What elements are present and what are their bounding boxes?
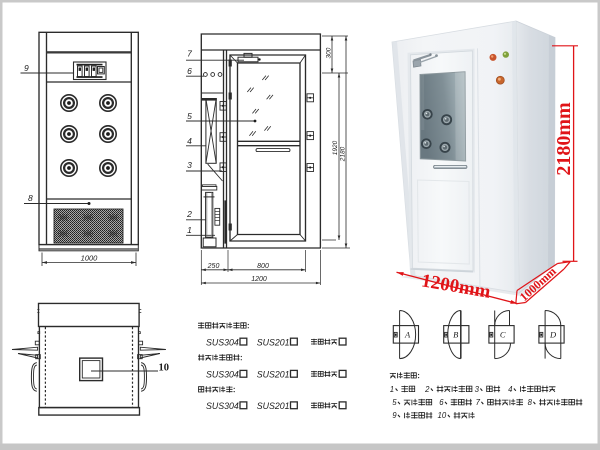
svg-text:10: 10 [438,411,447,420]
svg-text:2180mm: 2180mm [553,102,575,176]
svg-text:7: 7 [187,49,192,59]
svg-text:8: 8 [528,398,533,407]
svg-text:3: 3 [475,385,480,394]
svg-text:3: 3 [187,160,192,170]
svg-text:7: 7 [476,398,481,407]
svg-text:1: 1 [390,385,394,394]
svg-text:C: C [500,329,506,339]
svg-text:800: 800 [257,263,269,270]
svg-text:1920: 1920 [332,140,339,155]
svg-text:1: 1 [187,225,192,235]
svg-text:SUS201: SUS201 [257,337,290,347]
svg-text:B: B [453,329,458,339]
svg-text:4: 4 [508,385,513,394]
svg-text:300: 300 [326,47,333,58]
svg-text:1200: 1200 [251,276,267,283]
svg-text:250: 250 [207,263,220,270]
svg-text:2: 2 [424,385,430,394]
svg-text:9: 9 [392,411,397,420]
svg-text:8: 8 [28,193,33,203]
svg-text:2: 2 [186,209,192,219]
svg-text:1000: 1000 [81,253,99,262]
svg-text:D: D [549,329,557,339]
svg-text:5: 5 [187,111,192,121]
svg-text:6: 6 [187,66,192,76]
svg-text:SUS304: SUS304 [206,401,239,411]
svg-text:SUS201: SUS201 [257,370,290,380]
svg-text:SUS304: SUS304 [206,337,239,347]
svg-text:2180: 2180 [339,146,346,162]
svg-text:6: 6 [439,398,444,407]
svg-text:5: 5 [392,398,397,407]
svg-text:SUS304: SUS304 [206,370,239,380]
svg-text:9: 9 [24,63,29,73]
svg-text:4: 4 [187,136,192,146]
svg-text:A: A [404,329,411,339]
svg-text:SUS201: SUS201 [257,401,290,411]
svg-text:10: 10 [159,363,170,374]
